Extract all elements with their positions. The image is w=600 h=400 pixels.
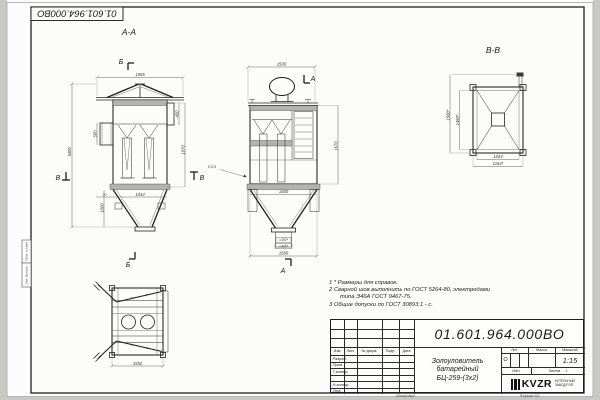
tb-lit-value: О	[501, 353, 510, 367]
tb-listov: Листов 1	[531, 367, 585, 374]
dim-front-top: 1500	[277, 62, 287, 67]
outlet-ellipse	[270, 78, 295, 96]
dim-front-hopper-top: 1480	[279, 189, 289, 194]
tb-listov-label: Листов	[549, 369, 561, 373]
bb-center-rect	[492, 113, 505, 126]
company-logo: KVZR КОТЕЛЬНЫЙ ЗАВОД РЭП	[501, 374, 585, 394]
section-mark-v-right: В	[200, 175, 205, 182]
section-mark-b-top: Б	[119, 59, 124, 66]
section-mark-b-bottom: Б	[126, 262, 131, 269]
section-mark-a-top: А	[310, 76, 316, 83]
bottom-rect	[112, 288, 163, 355]
margin-box-top-label: Подп. и дата	[25, 242, 29, 261]
note-line-3: типа Э46А ГОСТ 9467-75.	[329, 294, 490, 301]
dim-bb-left-inner: 1460*	[455, 114, 460, 125]
view-aa: 1555 3400 500 450	[56, 59, 205, 269]
company-line2: ЗАВОД РЭП	[555, 384, 575, 388]
tb-name-line3: БЦ-259-(3х2)	[437, 375, 479, 383]
footer-format: Формат А3	[520, 394, 539, 398]
front-panel	[294, 112, 313, 159]
tb-col-podp: Подп.	[382, 347, 399, 355]
dim-aa-branch: 450	[175, 110, 180, 118]
view-front: 1500 А 1670 1480	[208, 62, 339, 276]
dim-front-outlet-outer: □400*	[279, 245, 289, 249]
bottom-circle-left	[122, 315, 136, 329]
dim-aa-top: 1555	[135, 72, 145, 77]
logo-bar-icon	[518, 379, 520, 390]
technical-notes: 1 * Размеры для справок. 2 Сварной шов в…	[329, 280, 490, 309]
tb-col-list: Лист	[344, 347, 357, 355]
section-mark-v-left: В	[56, 175, 61, 182]
dim-front-bottom: 1580	[279, 251, 289, 256]
aa-outlet	[135, 227, 155, 231]
drawing-page: { "stamp": { "designation": "01.601.964.…	[0, 0, 600, 400]
dim-aa-height: 3400	[67, 147, 72, 157]
bb-top-tab	[517, 73, 524, 77]
tb-scale-value: 1:15	[555, 353, 585, 367]
section-mark-a-bottom: А	[280, 268, 286, 275]
section-label-aa: А-А	[121, 27, 137, 37]
dim-aa-right: 1670	[181, 145, 186, 155]
logo-bar-icon	[511, 379, 513, 390]
dim-aa-inlet: 500	[93, 130, 98, 138]
tb-designation: 01.601.964.000ВО	[414, 320, 585, 347]
weld-label: П-5,5	[208, 165, 216, 169]
dim-bb-bottom-inner: 1044	[493, 154, 503, 159]
section-label-bb: В-В	[486, 45, 501, 55]
tb-row-utv: Утв.	[331, 388, 359, 395]
stamp-designation: 01.601.964.000ВО	[37, 7, 117, 18]
view-bb: 1580* 1460* 1044 1164*	[446, 73, 527, 168]
logo-text: KVZR	[522, 378, 552, 390]
dim-aa-hopper-height: 1000	[100, 203, 105, 213]
dim-front-outlet-inner: □300*	[279, 238, 289, 242]
aa-body	[113, 100, 167, 187]
tb-col-izm: Изм.	[331, 347, 344, 355]
dim-front-right: 1670	[334, 141, 339, 151]
dim-aa-hopper-width: 1044	[135, 192, 145, 197]
footer-copied: Копировал	[396, 394, 415, 398]
dim-bb-bottom-outer: 1164*	[493, 161, 504, 166]
tb-part-name: Золоуловитель батарейный БЦ-259-(3х2)	[414, 347, 501, 394]
tb-list-label: Лист	[501, 367, 531, 374]
title-stamp-top: 01.601.964.000ВО	[31, 7, 123, 21]
tb-listov-value: 1	[565, 369, 567, 373]
margin-box-bottom-label: Инв. № подл.	[25, 266, 29, 285]
tb-name-line2: батарейный	[436, 366, 478, 374]
bottom-circle-right	[141, 315, 155, 329]
tb-col-data: Дата	[399, 347, 414, 355]
note-line-4: 3 Общие допуски по ГОСТ 30893.1 - с.	[329, 302, 490, 309]
dim-bb-left-outer: 1580*	[446, 109, 451, 120]
logo-bar-icon	[514, 379, 516, 390]
title-block: Изм. Лист № докум. Подп. Дата Разраб. Пр…	[330, 319, 584, 393]
tb-col-doc: № докум.	[357, 347, 382, 355]
view-bottom: 1552	[94, 282, 169, 368]
bb-outer-rect	[473, 87, 523, 153]
dim-bottom-width: 1552	[133, 361, 143, 366]
aa-branch	[167, 103, 174, 125]
tb-mass-label: Масса	[528, 347, 555, 353]
front-outlet-flange	[272, 228, 296, 232]
weld-leader-arrow	[243, 175, 247, 178]
note-line-2: 2 Сварной шов выполнить по ГОСТ 5264-80,…	[329, 287, 490, 294]
logo-company-name: КОТЕЛЬНЫЙ ЗАВОД РЭП	[555, 380, 575, 388]
dim-aa-flange: 70	[103, 193, 107, 197]
